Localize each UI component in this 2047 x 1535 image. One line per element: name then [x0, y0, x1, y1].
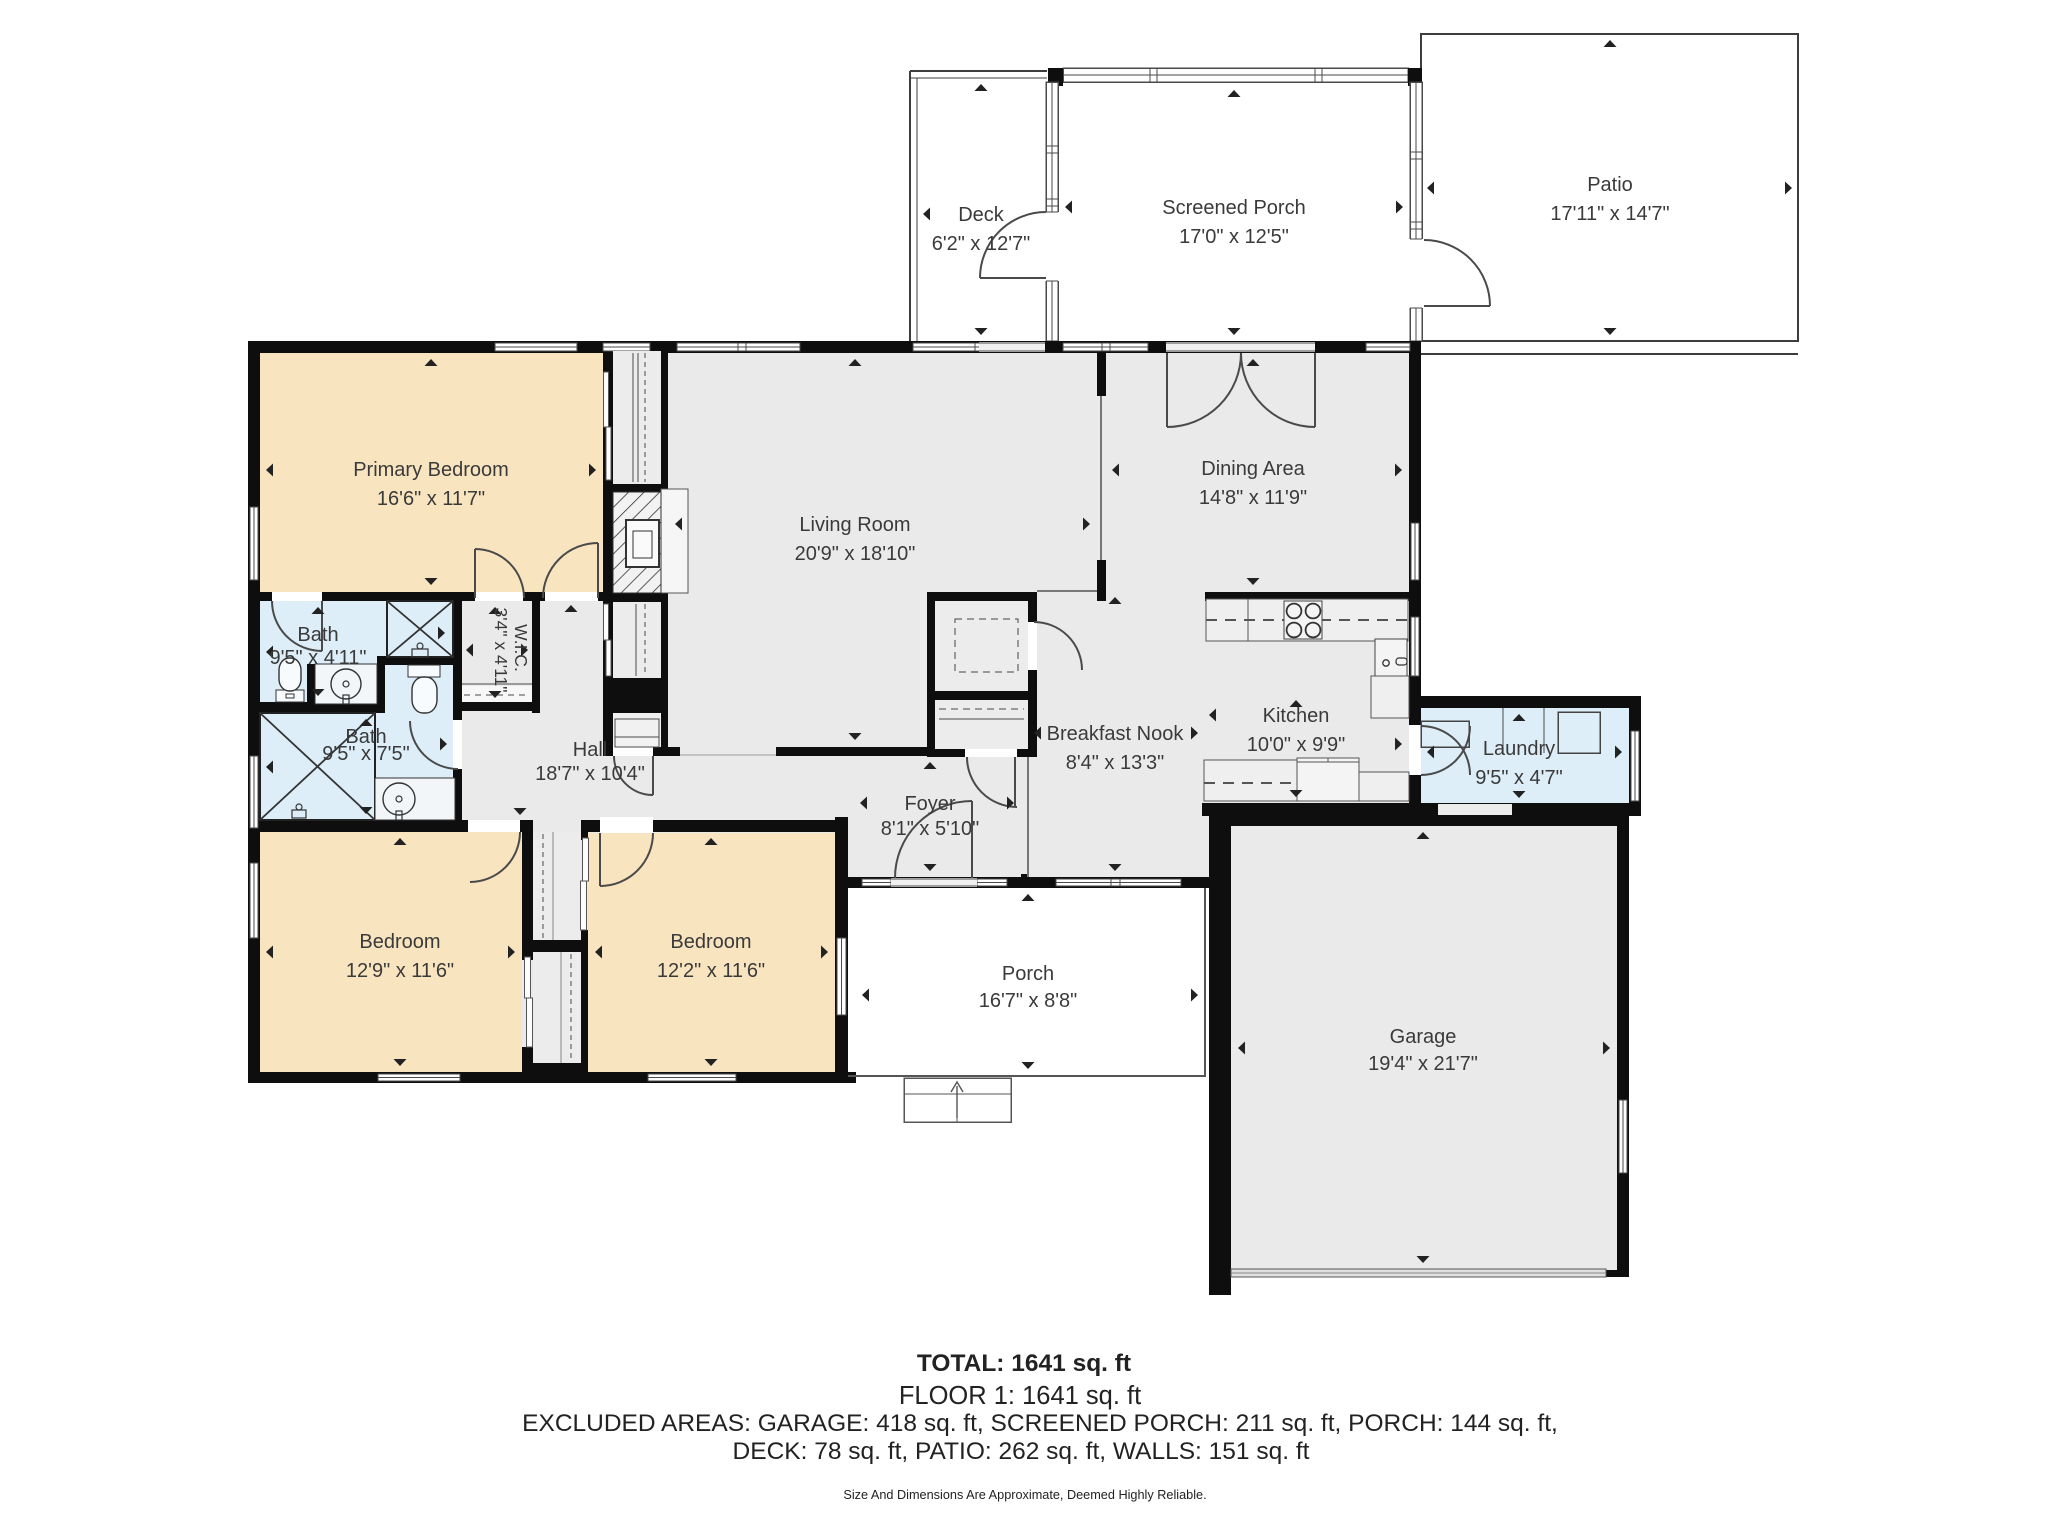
svg-text:Breakfast Nook: Breakfast Nook	[1047, 723, 1185, 745]
svg-text:W.I.C.: W.I.C.	[511, 624, 531, 672]
svg-text:EXCLUDED AREAS: GARAGE: 418 sq: EXCLUDED AREAS: GARAGE: 418 sq. ft, SCRE…	[522, 1410, 1558, 1437]
svg-text:Garage: Garage	[1390, 1026, 1457, 1048]
svg-text:Laundry: Laundry	[1483, 738, 1555, 760]
svg-text:17'11" x 14'7": 17'11" x 14'7"	[1550, 203, 1669, 225]
svg-text:20'9" x 18'10": 20'9" x 18'10"	[795, 543, 916, 565]
svg-text:8'4" x 13'3": 8'4" x 13'3"	[1066, 752, 1165, 774]
svg-text:FLOOR 1: 1641 sq. ft: FLOOR 1: 1641 sq. ft	[899, 1382, 1141, 1410]
svg-text:9'5" x 7'5": 9'5" x 7'5"	[322, 743, 409, 765]
svg-text:18'7" x 10'4": 18'7" x 10'4"	[535, 763, 645, 785]
svg-text:19'4" x 21'7": 19'4" x 21'7"	[1368, 1053, 1478, 1075]
svg-text:Dining Area: Dining Area	[1201, 458, 1305, 480]
svg-text:Patio: Patio	[1587, 174, 1633, 196]
svg-text:9'5" x 4'11": 9'5" x 4'11"	[269, 647, 366, 669]
svg-text:17'0" x 12'5": 17'0" x 12'5"	[1179, 226, 1289, 248]
svg-text:Foyer: Foyer	[904, 793, 955, 815]
svg-text:Deck: Deck	[958, 204, 1005, 226]
svg-text:Screened Porch: Screened Porch	[1162, 197, 1305, 219]
svg-text:Living Room: Living Room	[799, 514, 910, 536]
svg-text:9'5" x 4'7": 9'5" x 4'7"	[1475, 767, 1562, 789]
svg-text:3'4" x 4'11": 3'4" x 4'11"	[491, 608, 511, 693]
svg-text:Bedroom: Bedroom	[359, 931, 440, 953]
svg-text:12'2" x 11'6": 12'2" x 11'6"	[657, 960, 765, 982]
svg-text:10'0" x 9'9": 10'0" x 9'9"	[1247, 734, 1346, 756]
svg-text:6'2" x 12'7": 6'2" x 12'7"	[932, 233, 1031, 255]
svg-text:Bedroom: Bedroom	[670, 931, 751, 953]
svg-text:DECK: 78 sq. ft, PATIO: 262 sq: DECK: 78 sq. ft, PATIO: 262 sq. ft, WALL…	[733, 1438, 1310, 1465]
svg-text:Size And Dimensions Are Approx: Size And Dimensions Are Approximate, Dee…	[843, 1488, 1206, 1502]
svg-text:14'8" x 11'9": 14'8" x 11'9"	[1199, 487, 1307, 509]
svg-text:TOTAL: 1641 sq. ft: TOTAL: 1641 sq. ft	[917, 1350, 1131, 1377]
svg-text:Primary Bedroom: Primary Bedroom	[353, 459, 509, 481]
svg-text:12'9" x 11'6": 12'9" x 11'6"	[346, 960, 454, 982]
svg-text:16'7" x 8'8": 16'7" x 8'8"	[979, 990, 1078, 1012]
svg-text:Kitchen: Kitchen	[1263, 705, 1330, 727]
svg-text:8'1" x 5'10": 8'1" x 5'10"	[881, 818, 980, 840]
svg-text:Bath: Bath	[297, 624, 338, 646]
svg-text:Porch: Porch	[1002, 963, 1054, 985]
svg-text:16'6" x 11'7": 16'6" x 11'7"	[377, 488, 485, 510]
svg-text:Hall: Hall	[573, 739, 607, 761]
